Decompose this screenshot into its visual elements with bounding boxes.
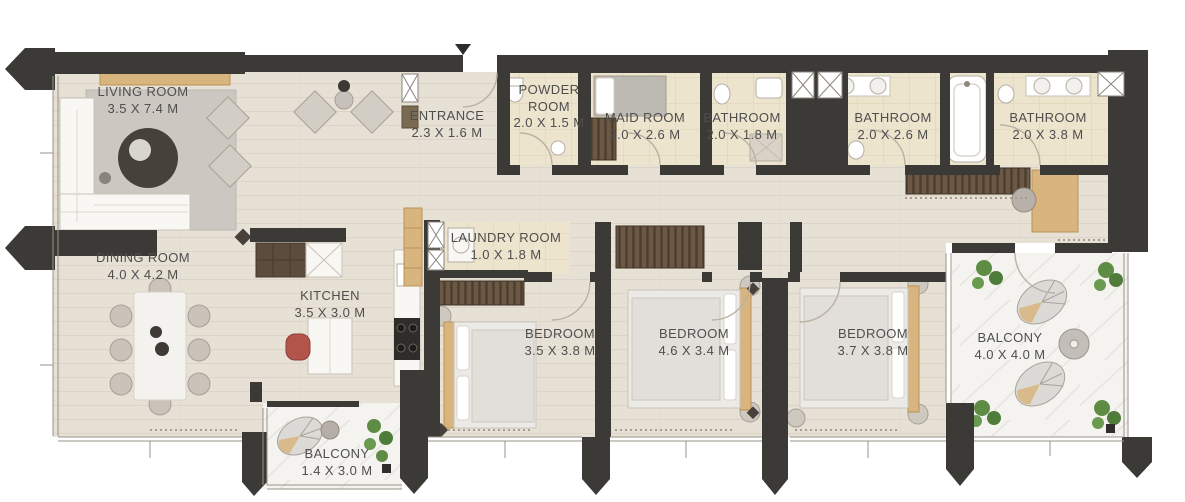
side-table [335, 91, 353, 109]
stove [394, 318, 420, 360]
desk-chair [1012, 188, 1036, 212]
basin [756, 78, 782, 98]
basin [551, 141, 565, 155]
desk [1032, 170, 1078, 232]
red-chair [286, 334, 310, 360]
wardrobe [432, 281, 524, 305]
wardrobe [616, 226, 704, 268]
coffee-table [118, 128, 178, 188]
wall-arrow-top [5, 48, 55, 90]
washer [448, 228, 474, 262]
toilet [714, 84, 730, 104]
headboard [444, 322, 454, 428]
bedroom-1-furniture [431, 281, 536, 437]
pier [1122, 437, 1152, 478]
floor-plan: LIVING ROOM3.5 X 7.4 M ENTRANCE2.3 X 1.6… [0, 0, 1185, 502]
floor-plan-drawing [0, 0, 1185, 502]
tv-console [100, 73, 230, 85]
toilet [998, 85, 1014, 103]
pier [762, 437, 788, 495]
headboard [908, 286, 919, 412]
toilet [848, 141, 864, 159]
pier [582, 437, 610, 495]
wall-arrow-mid [5, 226, 55, 270]
laundry-fixtures [448, 228, 474, 262]
entry-cabinet [404, 208, 422, 286]
pier [946, 403, 974, 486]
bedroom-3-furniture [787, 274, 928, 427]
entrance-arrow-icon [455, 44, 471, 55]
pouf [321, 421, 339, 439]
pier [400, 370, 428, 494]
